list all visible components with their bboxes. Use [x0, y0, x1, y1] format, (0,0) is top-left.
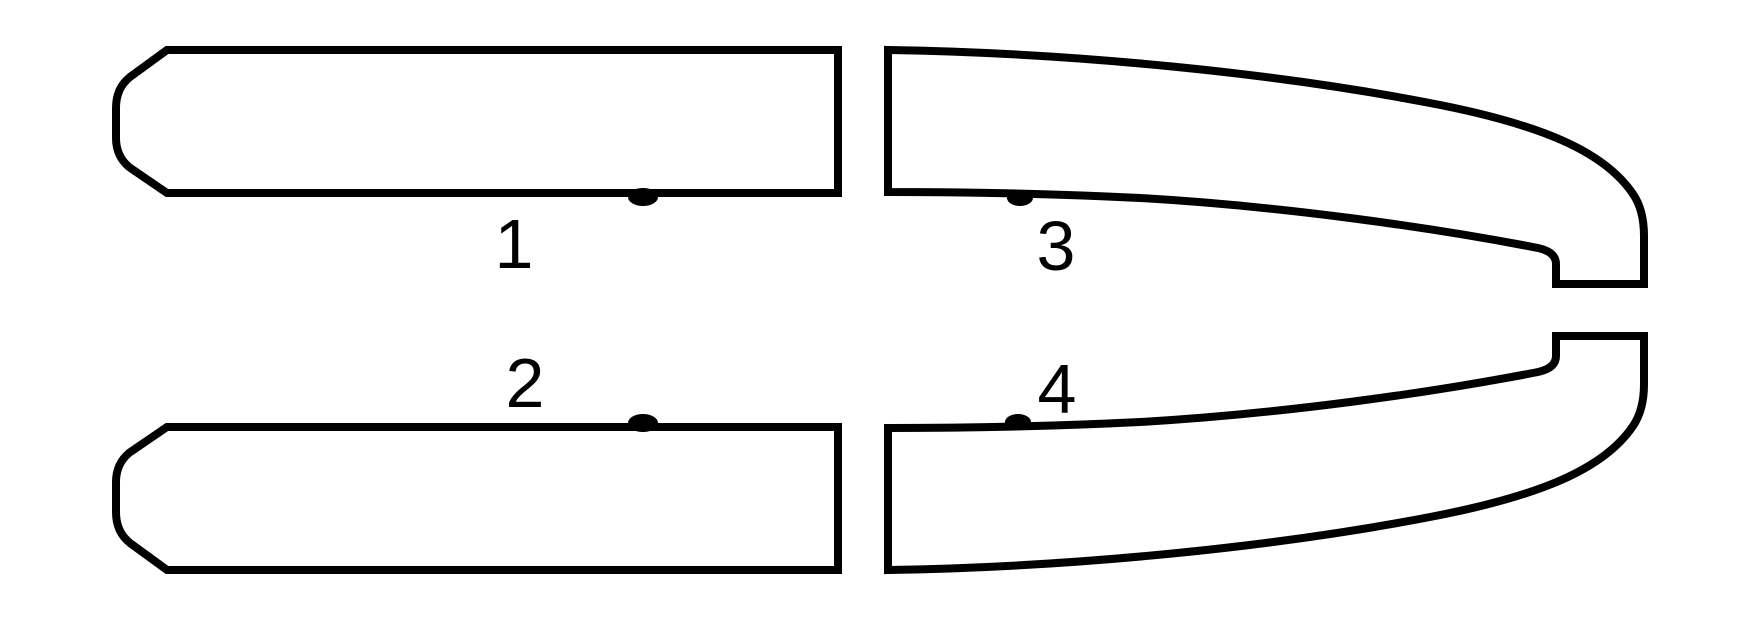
chamber-2-outline	[116, 427, 838, 570]
valve-marker-1	[628, 188, 658, 206]
chamber-3-outline	[888, 50, 1644, 284]
chamber-4-outline	[888, 336, 1644, 570]
valve-markers	[628, 188, 1033, 432]
chamber-2-label: 2	[506, 344, 545, 422]
chamber-1-label: 1	[495, 205, 534, 283]
chamber-outlines	[116, 50, 1644, 570]
valve-marker-4	[1005, 414, 1031, 430]
diagram-svg: 1 2 3 4	[0, 0, 1743, 628]
chamber-1-outline	[116, 50, 838, 193]
valve-marker-3	[1007, 190, 1033, 206]
part-labels: 1 2 3 4	[495, 205, 1077, 428]
boat-tube-parts-diagram: 1 2 3 4	[0, 0, 1743, 628]
chamber-4-label: 4	[1038, 350, 1077, 428]
valve-marker-2	[628, 414, 658, 432]
chamber-3-label: 3	[1037, 207, 1076, 285]
